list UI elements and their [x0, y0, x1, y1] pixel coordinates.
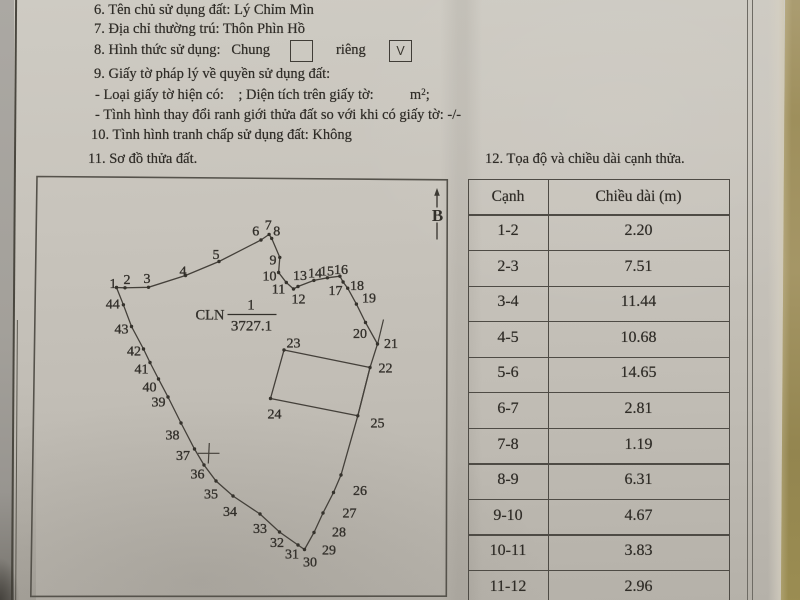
svg-text:7: 7	[265, 219, 272, 234]
svg-text:41: 41	[135, 363, 149, 378]
svg-text:8: 8	[273, 224, 280, 239]
svg-text:15: 15	[320, 264, 334, 279]
svg-text:26: 26	[353, 484, 367, 499]
svg-text:44: 44	[106, 298, 120, 313]
svg-text:43: 43	[115, 323, 129, 338]
svg-text:32: 32	[270, 536, 284, 551]
svg-text:35: 35	[204, 488, 218, 503]
svg-text:19: 19	[362, 292, 376, 307]
svg-text:21: 21	[384, 337, 398, 352]
svg-text:1: 1	[110, 277, 117, 292]
svg-text:38: 38	[166, 429, 180, 444]
svg-text:23: 23	[287, 337, 301, 352]
svg-text:6: 6	[252, 225, 259, 240]
svg-text:22: 22	[379, 362, 393, 377]
svg-text:11: 11	[272, 283, 285, 298]
svg-text:3: 3	[144, 272, 151, 287]
svg-text:36: 36	[191, 468, 205, 483]
svg-text:37: 37	[176, 449, 190, 464]
svg-text:CLN: CLN	[196, 308, 226, 324]
svg-text:13: 13	[293, 269, 307, 284]
svg-text:12: 12	[292, 293, 306, 308]
svg-text:39: 39	[152, 396, 166, 411]
svg-text:9: 9	[270, 254, 277, 269]
svg-text:31: 31	[285, 548, 299, 563]
svg-text:25: 25	[371, 417, 385, 432]
svg-text:3727.1: 3727.1	[231, 319, 272, 335]
svg-text:28: 28	[332, 526, 346, 541]
svg-text:2: 2	[124, 273, 131, 288]
svg-text:40: 40	[143, 381, 157, 396]
svg-text:5: 5	[213, 248, 220, 263]
svg-text:24: 24	[268, 408, 282, 423]
svg-text:29: 29	[322, 544, 336, 559]
svg-text:4: 4	[180, 265, 187, 280]
svg-text:33: 33	[253, 522, 267, 537]
svg-text:1: 1	[247, 298, 255, 314]
svg-text:34: 34	[223, 505, 237, 520]
svg-text:27: 27	[343, 507, 357, 522]
svg-text:B: B	[432, 206, 443, 225]
svg-text:17: 17	[329, 284, 343, 299]
svg-text:30: 30	[303, 556, 317, 571]
svg-text:16: 16	[334, 263, 348, 278]
svg-text:20: 20	[353, 327, 367, 342]
svg-text:42: 42	[127, 345, 141, 360]
